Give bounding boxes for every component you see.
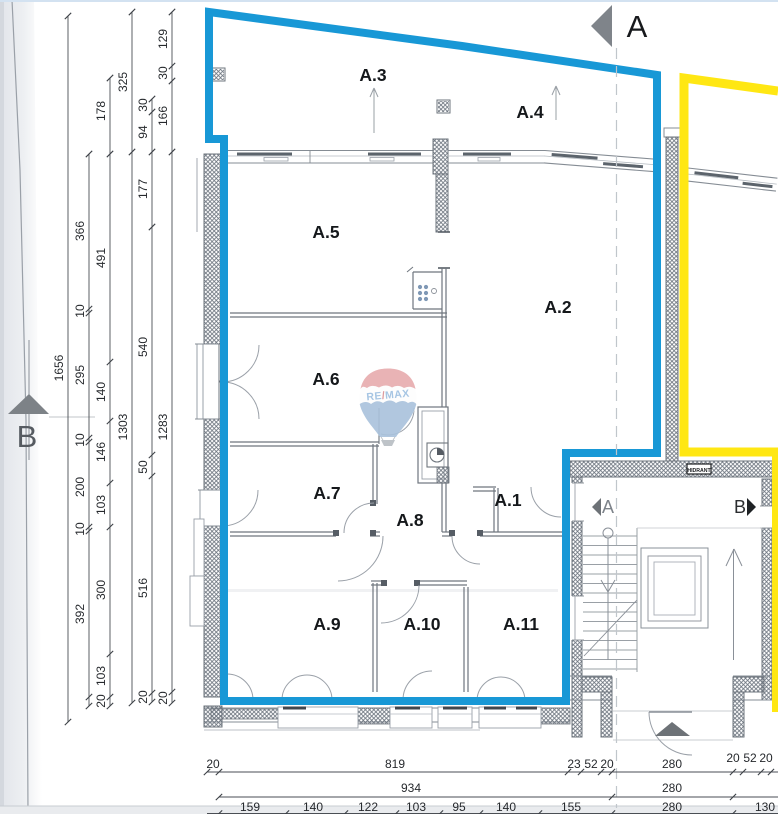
svg-text:A.3: A.3 (359, 65, 387, 85)
svg-text:A.9: A.9 (313, 614, 341, 634)
svg-text:1303: 1303 (116, 413, 130, 440)
svg-text:1656: 1656 (52, 354, 66, 381)
svg-text:A: A (602, 497, 614, 517)
svg-text:491: 491 (94, 248, 108, 268)
svg-text:178: 178 (94, 101, 108, 121)
svg-text:140: 140 (496, 800, 516, 814)
svg-text:140: 140 (303, 800, 323, 814)
svg-text:10: 10 (73, 433, 87, 447)
svg-text:20: 20 (726, 751, 740, 765)
svg-text:A.1: A.1 (494, 490, 522, 510)
svg-text:A.11: A.11 (503, 614, 539, 634)
svg-text:HIDRANT: HIDRANT (687, 468, 711, 474)
svg-text:146: 146 (94, 442, 108, 462)
svg-text:540: 540 (136, 337, 150, 357)
svg-text:159: 159 (240, 800, 260, 814)
svg-text:295: 295 (73, 365, 87, 385)
svg-text:A.2: A.2 (544, 297, 572, 317)
svg-text:A: A (627, 9, 648, 44)
svg-text:A.7: A.7 (313, 483, 340, 503)
svg-text:A.5: A.5 (312, 222, 340, 242)
svg-text:95: 95 (452, 800, 466, 814)
svg-text:130: 130 (755, 800, 775, 814)
svg-text:129: 129 (156, 29, 170, 49)
svg-text:20: 20 (136, 690, 150, 704)
svg-text:10: 10 (73, 304, 87, 318)
svg-text:392: 392 (73, 604, 87, 624)
svg-text:52: 52 (584, 757, 598, 771)
svg-text:A.10: A.10 (404, 614, 441, 634)
svg-text:1283: 1283 (156, 413, 170, 440)
svg-text:50: 50 (136, 460, 150, 474)
svg-text:934: 934 (401, 781, 421, 795)
svg-text:103: 103 (94, 666, 108, 686)
svg-text:23: 23 (567, 757, 581, 771)
svg-text:30: 30 (156, 66, 170, 80)
svg-text:366: 366 (73, 221, 87, 241)
svg-text:20: 20 (206, 757, 220, 771)
svg-text:A.6: A.6 (312, 369, 340, 389)
svg-text:B: B (17, 419, 38, 454)
svg-text:103: 103 (94, 495, 108, 515)
svg-text:30: 30 (136, 98, 150, 112)
svg-text:200: 200 (73, 477, 87, 497)
svg-text:300: 300 (94, 580, 108, 600)
svg-text:20: 20 (600, 757, 614, 771)
svg-text:166: 166 (156, 106, 170, 126)
svg-text:A.4: A.4 (516, 102, 544, 122)
svg-text:177: 177 (136, 179, 150, 199)
svg-text:280: 280 (662, 800, 682, 814)
svg-text:516: 516 (136, 578, 150, 598)
svg-text:B: B (734, 497, 746, 517)
svg-text:122: 122 (358, 800, 378, 814)
svg-text:10: 10 (73, 522, 87, 536)
svg-text:20: 20 (94, 694, 108, 708)
svg-text:52: 52 (743, 751, 757, 765)
svg-text:325: 325 (116, 72, 130, 92)
svg-text:A.8: A.8 (396, 510, 424, 530)
svg-text:155: 155 (561, 800, 581, 814)
svg-text:94: 94 (136, 125, 150, 139)
svg-text:103: 103 (406, 800, 426, 814)
svg-text:140: 140 (94, 382, 108, 402)
svg-text:280: 280 (662, 757, 682, 771)
svg-text:20: 20 (156, 691, 170, 705)
svg-text:819: 819 (385, 757, 405, 771)
svg-text:280: 280 (662, 781, 682, 795)
svg-text:20: 20 (759, 751, 773, 765)
